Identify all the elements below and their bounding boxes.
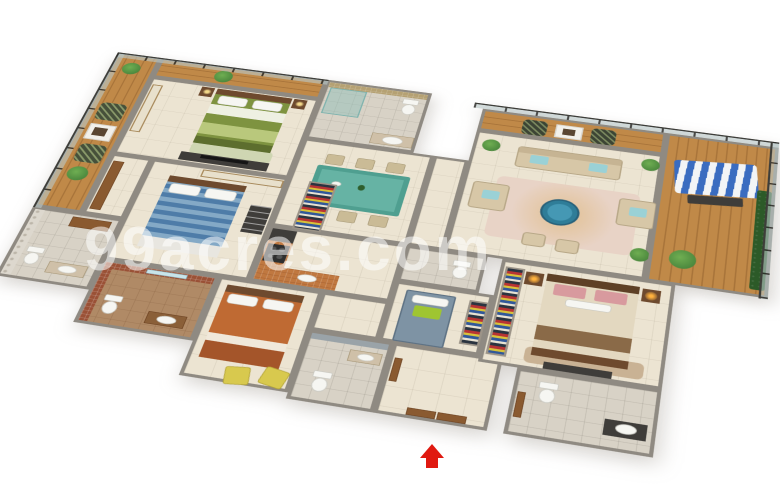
vanity-counter (44, 261, 88, 278)
plant-icon (668, 248, 697, 270)
nightstand (524, 271, 545, 286)
cushion (628, 207, 647, 218)
table-top (546, 203, 574, 223)
vanity-counter (347, 349, 383, 366)
wash-basin (381, 136, 404, 146)
wash-basin (155, 315, 178, 326)
dining-chair (367, 215, 389, 228)
bed-master (531, 273, 640, 369)
ottoman (520, 232, 546, 248)
cushion (529, 155, 549, 165)
burner (278, 247, 285, 252)
nightstand (291, 99, 308, 110)
bed-green (193, 89, 293, 154)
toilet-bowl (537, 388, 556, 404)
wash-basin (56, 265, 78, 275)
lamp-lit-icon (644, 291, 658, 301)
armchair (467, 180, 511, 211)
door (513, 391, 526, 418)
foot-sheet (137, 235, 222, 258)
lamp-icon (202, 89, 213, 95)
armchair-yellow (257, 366, 291, 390)
bed-orange (198, 285, 304, 370)
entrance-arrow-head (420, 444, 444, 458)
dining-chair (336, 210, 358, 223)
cushion (588, 163, 608, 174)
shower (321, 87, 368, 118)
cushion (481, 189, 500, 200)
toilet-bowl (451, 266, 469, 280)
frame-inner (562, 129, 576, 137)
open-wardrobe-colorful (485, 266, 525, 356)
burner (267, 253, 274, 258)
swing-canopy (674, 160, 759, 199)
toilet-bowl (309, 377, 329, 393)
armchair (615, 198, 657, 230)
entrance-arrow-icon (420, 444, 444, 470)
dining-chair (324, 154, 345, 166)
planter-soil (91, 127, 108, 137)
wash-basin (614, 423, 637, 436)
deco-wall (0, 209, 45, 275)
ottoman (554, 238, 580, 254)
toilet-bowl (99, 300, 120, 315)
vanity-dark (602, 419, 647, 442)
toilet-bowl (400, 104, 417, 116)
toilet-bowl (21, 251, 41, 265)
plant-icon (64, 165, 91, 182)
dining-chair (385, 162, 406, 174)
plant-icon (640, 158, 660, 172)
wash-basin (356, 353, 375, 363)
entrance-door (436, 412, 467, 424)
armchair-yellow (222, 366, 251, 385)
cushion-green (412, 305, 442, 320)
planter-table (83, 123, 118, 142)
bed-blue (137, 175, 247, 257)
floorplan-render: 99acres.com (0, 0, 780, 490)
entrance-arrow-stem (426, 457, 438, 468)
lamp-lit-icon (527, 274, 541, 284)
vanity-counter (144, 311, 188, 329)
deck-chair (589, 128, 617, 146)
nightstand (641, 288, 661, 303)
dining-chair (354, 158, 375, 170)
cabinet (68, 216, 112, 231)
door (388, 357, 402, 381)
sofa-three-seat (514, 146, 623, 181)
plant-icon (119, 62, 143, 75)
burner (276, 254, 283, 259)
bed-gray (392, 289, 457, 348)
frame-table (554, 124, 584, 141)
deck-chair (72, 143, 108, 164)
burner (270, 246, 277, 251)
balcony-east (645, 133, 779, 299)
deck-chair (521, 119, 549, 137)
plant-icon (481, 138, 502, 152)
vanity-counter (369, 132, 415, 148)
apartment-plan (0, 52, 779, 480)
nightstand (198, 87, 215, 98)
deck-chair (93, 102, 128, 122)
entrance-door (405, 407, 436, 419)
lamp-icon (294, 101, 305, 108)
